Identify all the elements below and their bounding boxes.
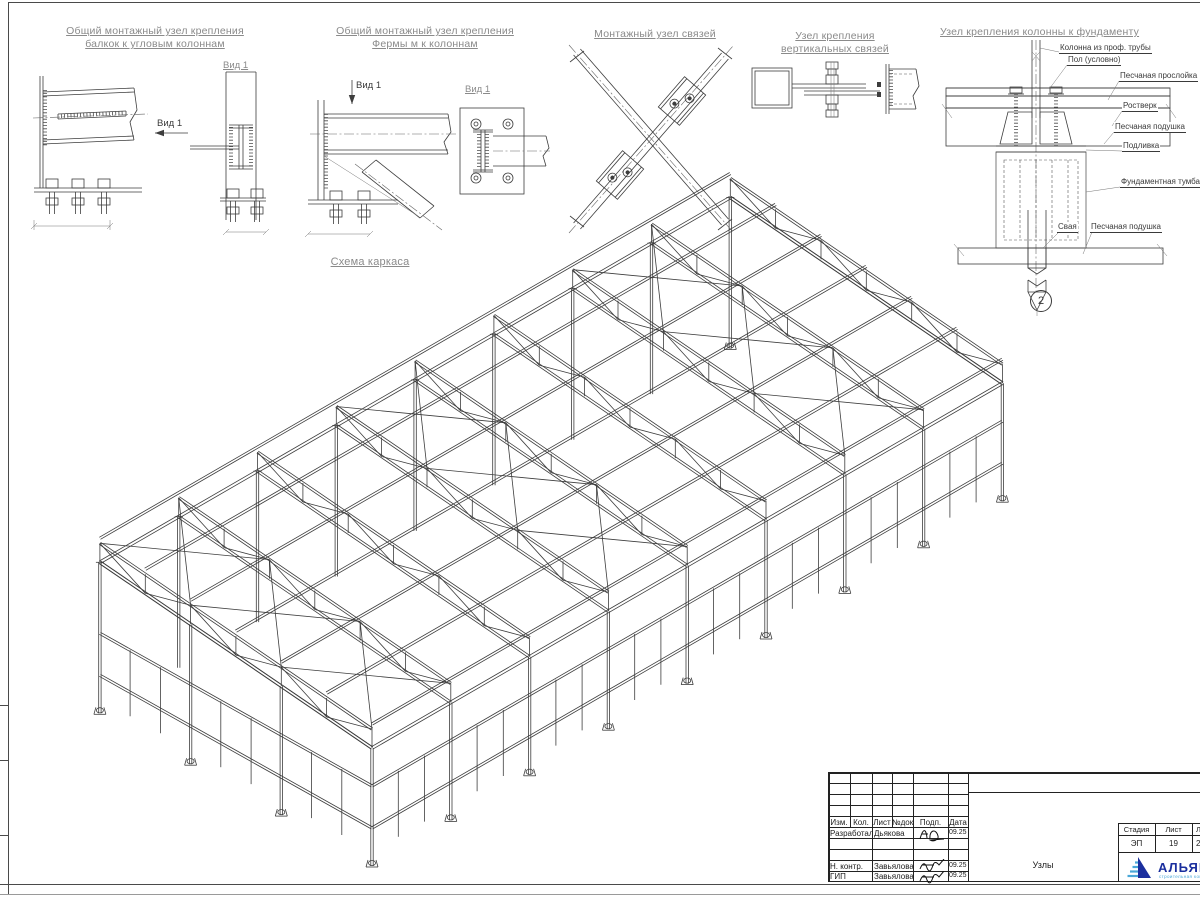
tb-sheets-label: Листов [1196, 825, 1200, 834]
tb-row-gip-role: ГИП [830, 872, 846, 881]
tb-sheet-label: Лист [1155, 825, 1192, 834]
tb-col-data: Дата [948, 818, 968, 827]
tb-doc-title: Узлы [968, 860, 1118, 870]
tb-sheets-value: 2 [1196, 839, 1200, 848]
company-subtitle: строительная компания [1159, 874, 1200, 879]
drawing-sheet: Общий монтажный узел крепления балкок к … [0, 0, 1200, 900]
tb-row-ncontrol-date: 09.25 [949, 862, 967, 869]
tb-row-ncontrol-role: Н. контр. [830, 862, 863, 871]
tb-row-gip-name: Завьялова [874, 872, 914, 881]
tb-stage-label: Стадия [1118, 825, 1155, 834]
tb-row-developer-signature [918, 826, 946, 842]
tb-col-list: Лист [872, 818, 892, 827]
tb-col-izm: Изм. [828, 818, 850, 827]
company-logo-icon [1124, 856, 1152, 879]
tb-stage-value: ЭП [1118, 839, 1155, 848]
tb-row-ncontrol-name: Завьялова [874, 862, 914, 871]
frame-scheme-drawing [0, 0, 1200, 900]
tb-row-developer-date: 09.25 [949, 829, 967, 836]
title-block: Изм. Кол. Лист №док Подп. Дата Разработа… [828, 772, 1200, 882]
tb-row-gip-date: 09.25 [949, 872, 967, 879]
tb-row-developer-name: Дьякова [874, 829, 905, 838]
tb-row-developer-role: Разработал [830, 829, 874, 838]
company-name: АЛЬЯНС [1158, 860, 1200, 875]
tb-sheet-value: 19 [1155, 839, 1192, 848]
tb-row-gip-signature [918, 871, 946, 884]
tb-col-kol: Кол. [850, 818, 872, 827]
tb-col-ndok: №док [892, 818, 913, 827]
